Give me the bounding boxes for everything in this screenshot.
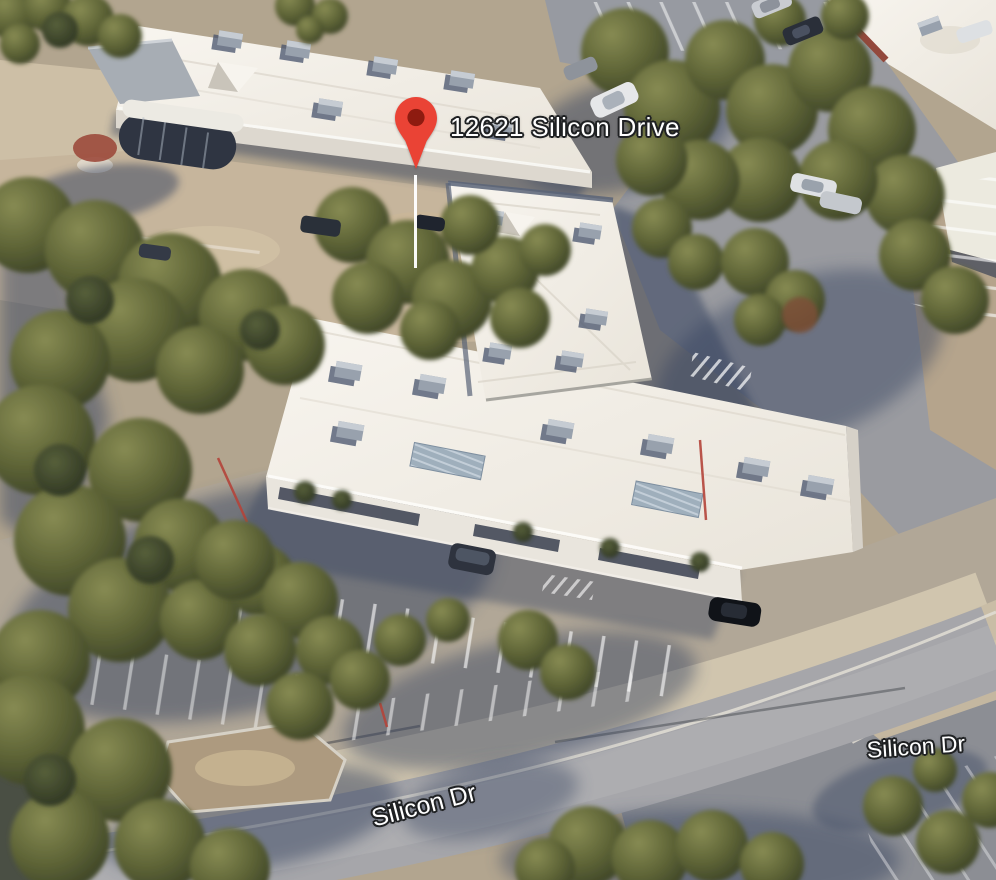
map-viewport[interactable]: 12621 Silicon Drive Silicon Dr Silicon D…	[0, 0, 996, 880]
pin-leader-line	[414, 175, 417, 268]
map-pin-icon[interactable]	[392, 95, 440, 173]
address-label: 12621 Silicon Drive	[450, 112, 680, 143]
